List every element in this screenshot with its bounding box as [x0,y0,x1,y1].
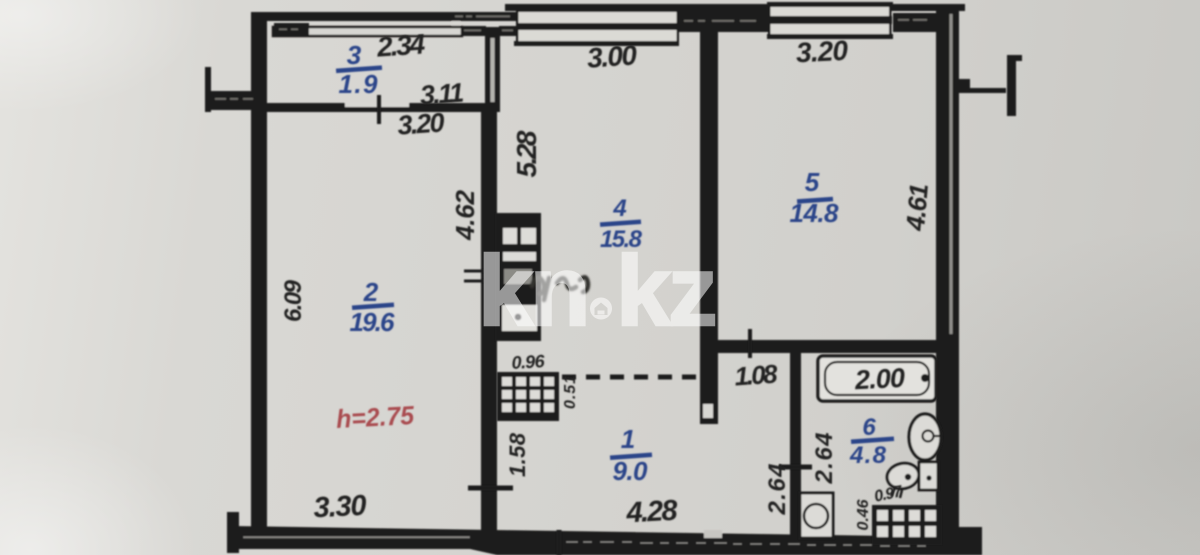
svg-text:0.97: 0.97 [873,483,905,506]
svg-text:3.20: 3.20 [795,35,849,69]
svg-text:0.46: 0.46 [855,499,872,530]
svg-text:kn: kn [478,235,588,346]
svg-text:4: 4 [612,195,626,222]
svg-text:2.00: 2.00 [853,363,906,396]
svg-text:4.62: 4.62 [450,189,480,241]
svg-text:4.8: 4.8 [849,442,887,469]
svg-text:0.96: 0.96 [511,351,546,373]
svg-text:19.6: 19.6 [350,307,396,337]
svg-text:3.30: 3.30 [313,490,368,525]
svg-text:1.9: 1.9 [339,69,379,99]
svg-text:3: 3 [347,40,362,70]
svg-text:3.00: 3.00 [586,39,638,73]
svg-text:3.11: 3.11 [419,78,465,111]
svg-text:4.61: 4.61 [900,182,934,232]
svg-text:14.8: 14.8 [790,198,840,228]
svg-text:1.08: 1.08 [734,358,780,391]
svg-text:9.0: 9.0 [613,456,649,486]
svg-text:5: 5 [805,167,820,197]
svg-text:1.58: 1.58 [505,432,530,477]
svg-text:4.28: 4.28 [625,495,679,530]
svg-text:1: 1 [621,424,635,454]
svg-text:2.34: 2.34 [375,28,426,62]
svg-text:2: 2 [363,277,379,307]
svg-text:2.64: 2.64 [764,464,791,516]
svg-text:kz: kz [616,235,715,346]
svg-text:h=2.75: h=2.75 [335,400,415,434]
svg-text:2.64: 2.64 [811,433,838,485]
svg-text:6: 6 [862,414,876,441]
svg-text:0.51: 0.51 [562,375,579,409]
svg-text:5.28: 5.28 [511,130,542,177]
svg-text:3.20: 3.20 [397,107,446,140]
svg-text:6.09: 6.09 [280,279,307,322]
